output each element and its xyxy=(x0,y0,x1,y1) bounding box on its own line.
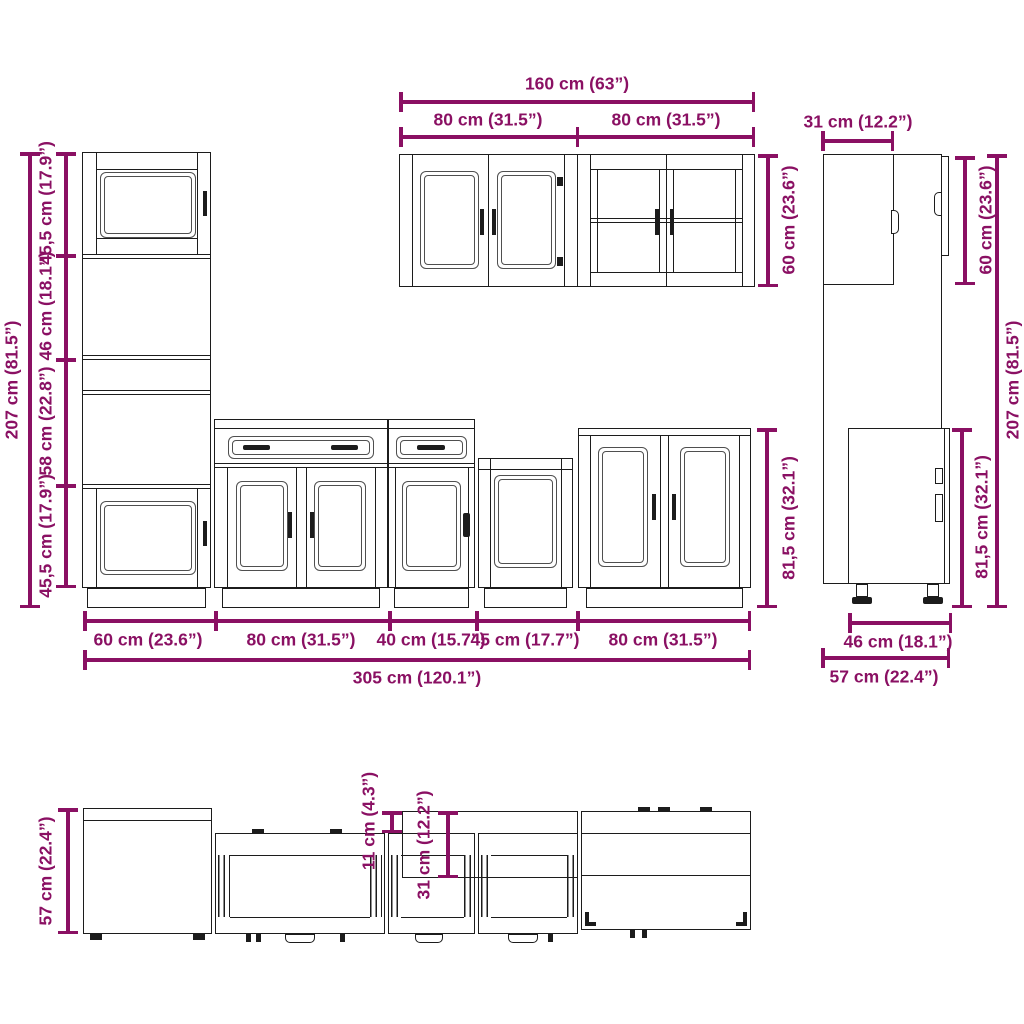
adjustable-leg xyxy=(856,584,868,597)
cabinet-divider xyxy=(577,154,578,287)
dim-line-side-total-depth xyxy=(821,656,950,660)
dim-label-seg-bottom: 45,5 cm (17.9”) xyxy=(37,474,55,598)
dim-label-width-tall: 60 cm (23.6”) xyxy=(94,631,203,649)
door-panel xyxy=(420,171,479,269)
leg-mark xyxy=(193,934,205,940)
glass-door-mullion xyxy=(590,222,742,223)
hinge-bump xyxy=(330,829,342,833)
door-stile xyxy=(412,154,413,287)
door-stile xyxy=(739,435,740,588)
plinth xyxy=(586,588,743,608)
plinth xyxy=(222,588,380,608)
plinth-foot xyxy=(285,934,315,943)
glass-frame-line xyxy=(597,169,598,272)
dim-label-width-40: 40 cm (15.7”) xyxy=(377,631,486,649)
hinge-mark xyxy=(557,177,563,186)
door-panel xyxy=(100,172,196,238)
leg-foot xyxy=(923,597,943,604)
drawer-box-line xyxy=(491,855,567,856)
door-panel xyxy=(100,501,196,575)
divider-line xyxy=(82,355,211,356)
dim-line-plan-wall-depth xyxy=(446,811,450,878)
glass-frame-line xyxy=(659,169,660,272)
door-stile xyxy=(742,154,743,287)
door-handle xyxy=(203,521,207,546)
drawer-box-line xyxy=(491,917,567,918)
drawer-band-line xyxy=(388,467,475,468)
door-stile xyxy=(96,488,97,588)
door-gap xyxy=(488,154,489,287)
shelf-line xyxy=(82,394,211,395)
plinth-foot xyxy=(508,934,538,943)
dim-tick xyxy=(576,127,580,147)
drawer-box-line xyxy=(230,917,370,918)
dim-label-side-total-depth: 57 cm (22.4”) xyxy=(830,668,939,686)
dim-line-plan-front-offset xyxy=(390,811,394,833)
plan-edge-line xyxy=(581,833,751,834)
drawer-slide-hatch xyxy=(567,855,577,917)
shelf-line xyxy=(82,390,211,391)
dim-label-side-wall-depth: 31 cm (12.2”) xyxy=(804,113,913,131)
door-rail xyxy=(96,169,197,170)
drawer-handle xyxy=(417,445,445,450)
countertop-line xyxy=(214,428,388,429)
plinth-foot xyxy=(415,934,443,943)
dim-label-wall-height: 60 cm (23.6”) xyxy=(780,166,798,275)
dim-line-side-base-depth xyxy=(848,621,952,625)
divider-line xyxy=(82,484,211,485)
dim-label-plan-wall-depth: 31 cm (12.2”) xyxy=(415,791,433,900)
plinth xyxy=(484,588,567,608)
door-handle xyxy=(672,494,676,520)
dim-line-total-width xyxy=(83,658,751,662)
dim-tick xyxy=(56,358,76,362)
dim-tick xyxy=(56,254,76,258)
hinge-bump xyxy=(252,829,264,833)
dim-tick xyxy=(56,484,76,488)
leg-mark xyxy=(256,934,261,942)
plan-edge-line xyxy=(83,820,212,821)
dim-label-total-width: 305 cm (120.1”) xyxy=(353,669,481,687)
dim-label-base-height: 81,5 cm (32.1”) xyxy=(780,456,798,580)
dim-label-wall-right-width: 80 cm (31.5”) xyxy=(612,111,721,129)
glass-door-rail xyxy=(590,169,742,170)
dim-line-tall-segments xyxy=(64,152,68,588)
door-panel xyxy=(494,475,557,568)
door-handle xyxy=(288,512,292,538)
leg-mark xyxy=(642,930,647,938)
drawer-slide-hatch xyxy=(218,855,230,917)
plinth xyxy=(394,588,469,608)
dim-line-side-wall-depth xyxy=(821,139,894,143)
hinge-block xyxy=(935,468,943,484)
leg-mark xyxy=(90,934,102,940)
dim-line-wall-height xyxy=(766,154,770,287)
corner-bracket xyxy=(585,922,596,926)
drawer-box-line xyxy=(401,917,464,918)
door-stile xyxy=(375,467,376,588)
corner-bracket xyxy=(736,922,747,926)
door-stile xyxy=(590,154,591,287)
glass-door-rail xyxy=(590,272,742,273)
kitchen-cabinet-dimension-diagram: 45,5 cm (17.9”) 46 cm (18.1”) 58 cm (22.… xyxy=(0,0,1024,1024)
door-handle xyxy=(652,494,656,520)
dim-label-side-wall-height: 60 cm (23.6”) xyxy=(977,166,995,275)
drawer-band-line xyxy=(214,463,388,464)
dim-tick xyxy=(388,611,392,631)
top-rail-line xyxy=(478,469,573,470)
glass-door-mullion xyxy=(590,218,742,219)
dim-label-seg-upper: 46 cm (18.1”) xyxy=(37,252,55,361)
leg-foot xyxy=(852,597,872,604)
dim-line-tall-total-height xyxy=(28,152,32,608)
drawer-handle xyxy=(243,445,270,450)
plinth xyxy=(87,588,206,608)
divider-line xyxy=(82,258,211,259)
divider-line xyxy=(82,359,211,360)
door-stile xyxy=(197,152,198,254)
hinge-mark xyxy=(557,257,563,266)
glass-frame-line xyxy=(735,169,736,272)
door-edge xyxy=(296,467,297,588)
door-edge xyxy=(660,435,661,588)
hinge-bump xyxy=(700,807,712,811)
dim-label-seg-top: 45,5 cm (17.9”) xyxy=(37,141,55,265)
dim-line-plan-depth xyxy=(66,808,70,934)
dim-label-wall-total-width: 160 cm (63”) xyxy=(525,75,629,93)
tall-door-handle-side xyxy=(934,192,942,216)
dim-label-side-base-depth: 46 cm (18.1”) xyxy=(844,633,953,651)
drawer-band-line xyxy=(388,463,475,464)
top-rail-line xyxy=(578,435,751,436)
door-handle xyxy=(492,209,496,235)
dim-label-wall-left-width: 80 cm (31.5”) xyxy=(434,111,543,129)
dim-label-width-80b: 80 cm (31.5”) xyxy=(609,631,718,649)
base-cabinet-side xyxy=(848,428,946,584)
door-edge xyxy=(668,435,669,588)
door-stile xyxy=(564,154,565,287)
drawer-handle xyxy=(331,445,358,450)
dim-line-wall-total-width xyxy=(399,100,755,104)
dim-label-tall-total-height: 207 cm (81.5”) xyxy=(3,321,21,440)
dim-label-seg-lower: 58 cm (22.8”) xyxy=(37,367,55,476)
countertop-line xyxy=(388,428,475,429)
door-stile xyxy=(490,458,491,588)
wall-cabinet-side xyxy=(823,154,894,285)
plan-tall-cabinet xyxy=(83,808,212,934)
drawer-slide-hatch xyxy=(391,855,401,917)
drawer-slide-hatch xyxy=(481,855,491,917)
dim-tick xyxy=(214,611,218,631)
dim-line-side-base-height xyxy=(960,428,964,608)
wall-door-handle-side xyxy=(891,210,899,234)
door-edge xyxy=(306,467,307,588)
base-door-edge xyxy=(944,428,950,584)
door-panel xyxy=(680,447,730,567)
hinge-bump xyxy=(638,807,650,811)
door-handle xyxy=(203,191,207,216)
dim-line-side-total-height xyxy=(995,154,999,608)
leg-mark xyxy=(246,934,251,942)
dim-label-plan-front-offset: 11 cm (4.3”) xyxy=(360,772,378,870)
plan-cabinet-80-right xyxy=(581,811,751,930)
door-panel xyxy=(598,447,648,567)
door-panel xyxy=(236,481,288,571)
dim-line-base-height xyxy=(765,428,769,608)
drawer-band-line xyxy=(214,467,388,468)
leg-mark xyxy=(340,934,345,942)
divider-line xyxy=(82,488,211,489)
door-handle xyxy=(655,209,659,235)
dim-label-width-45: 45 cm (17.7”) xyxy=(471,631,580,649)
adjustable-leg xyxy=(927,584,939,597)
dim-label-width-80a: 80 cm (31.5”) xyxy=(247,631,356,649)
door-handle xyxy=(463,513,470,537)
door-handle xyxy=(480,209,484,235)
hinge-bump xyxy=(658,807,670,811)
door-stile xyxy=(590,435,591,588)
dim-line-wall-halves xyxy=(399,135,755,139)
door-stile xyxy=(197,488,198,588)
dim-line-base-widths xyxy=(83,619,751,623)
divider-line xyxy=(82,254,211,255)
dim-label-plan-depth: 57 cm (22.4”) xyxy=(37,817,55,926)
hinge-block xyxy=(935,494,943,522)
dim-tick xyxy=(475,611,479,631)
door-handle xyxy=(310,512,314,538)
dim-tick xyxy=(576,611,580,631)
drawer-box-line xyxy=(230,855,370,856)
door-rail xyxy=(96,238,197,239)
door-gap xyxy=(666,154,667,287)
plan-cabinet-45 xyxy=(478,833,578,934)
door-panel xyxy=(402,481,461,571)
dim-label-side-total-height: 207 cm (81.5”) xyxy=(1004,321,1022,440)
leg-mark xyxy=(548,934,553,942)
door-panel xyxy=(314,481,366,571)
door-stile xyxy=(395,467,396,588)
leg-mark xyxy=(630,930,635,938)
dim-label-side-base-height: 81,5 cm (32.1”) xyxy=(973,455,991,579)
door-stile xyxy=(561,458,562,588)
door-panel xyxy=(497,171,556,269)
dim-line-side-wall-height xyxy=(963,156,967,285)
tall-door-edge xyxy=(941,156,949,256)
door-stile xyxy=(227,467,228,588)
plan-edge-line xyxy=(581,875,751,876)
door-handle xyxy=(670,209,674,235)
